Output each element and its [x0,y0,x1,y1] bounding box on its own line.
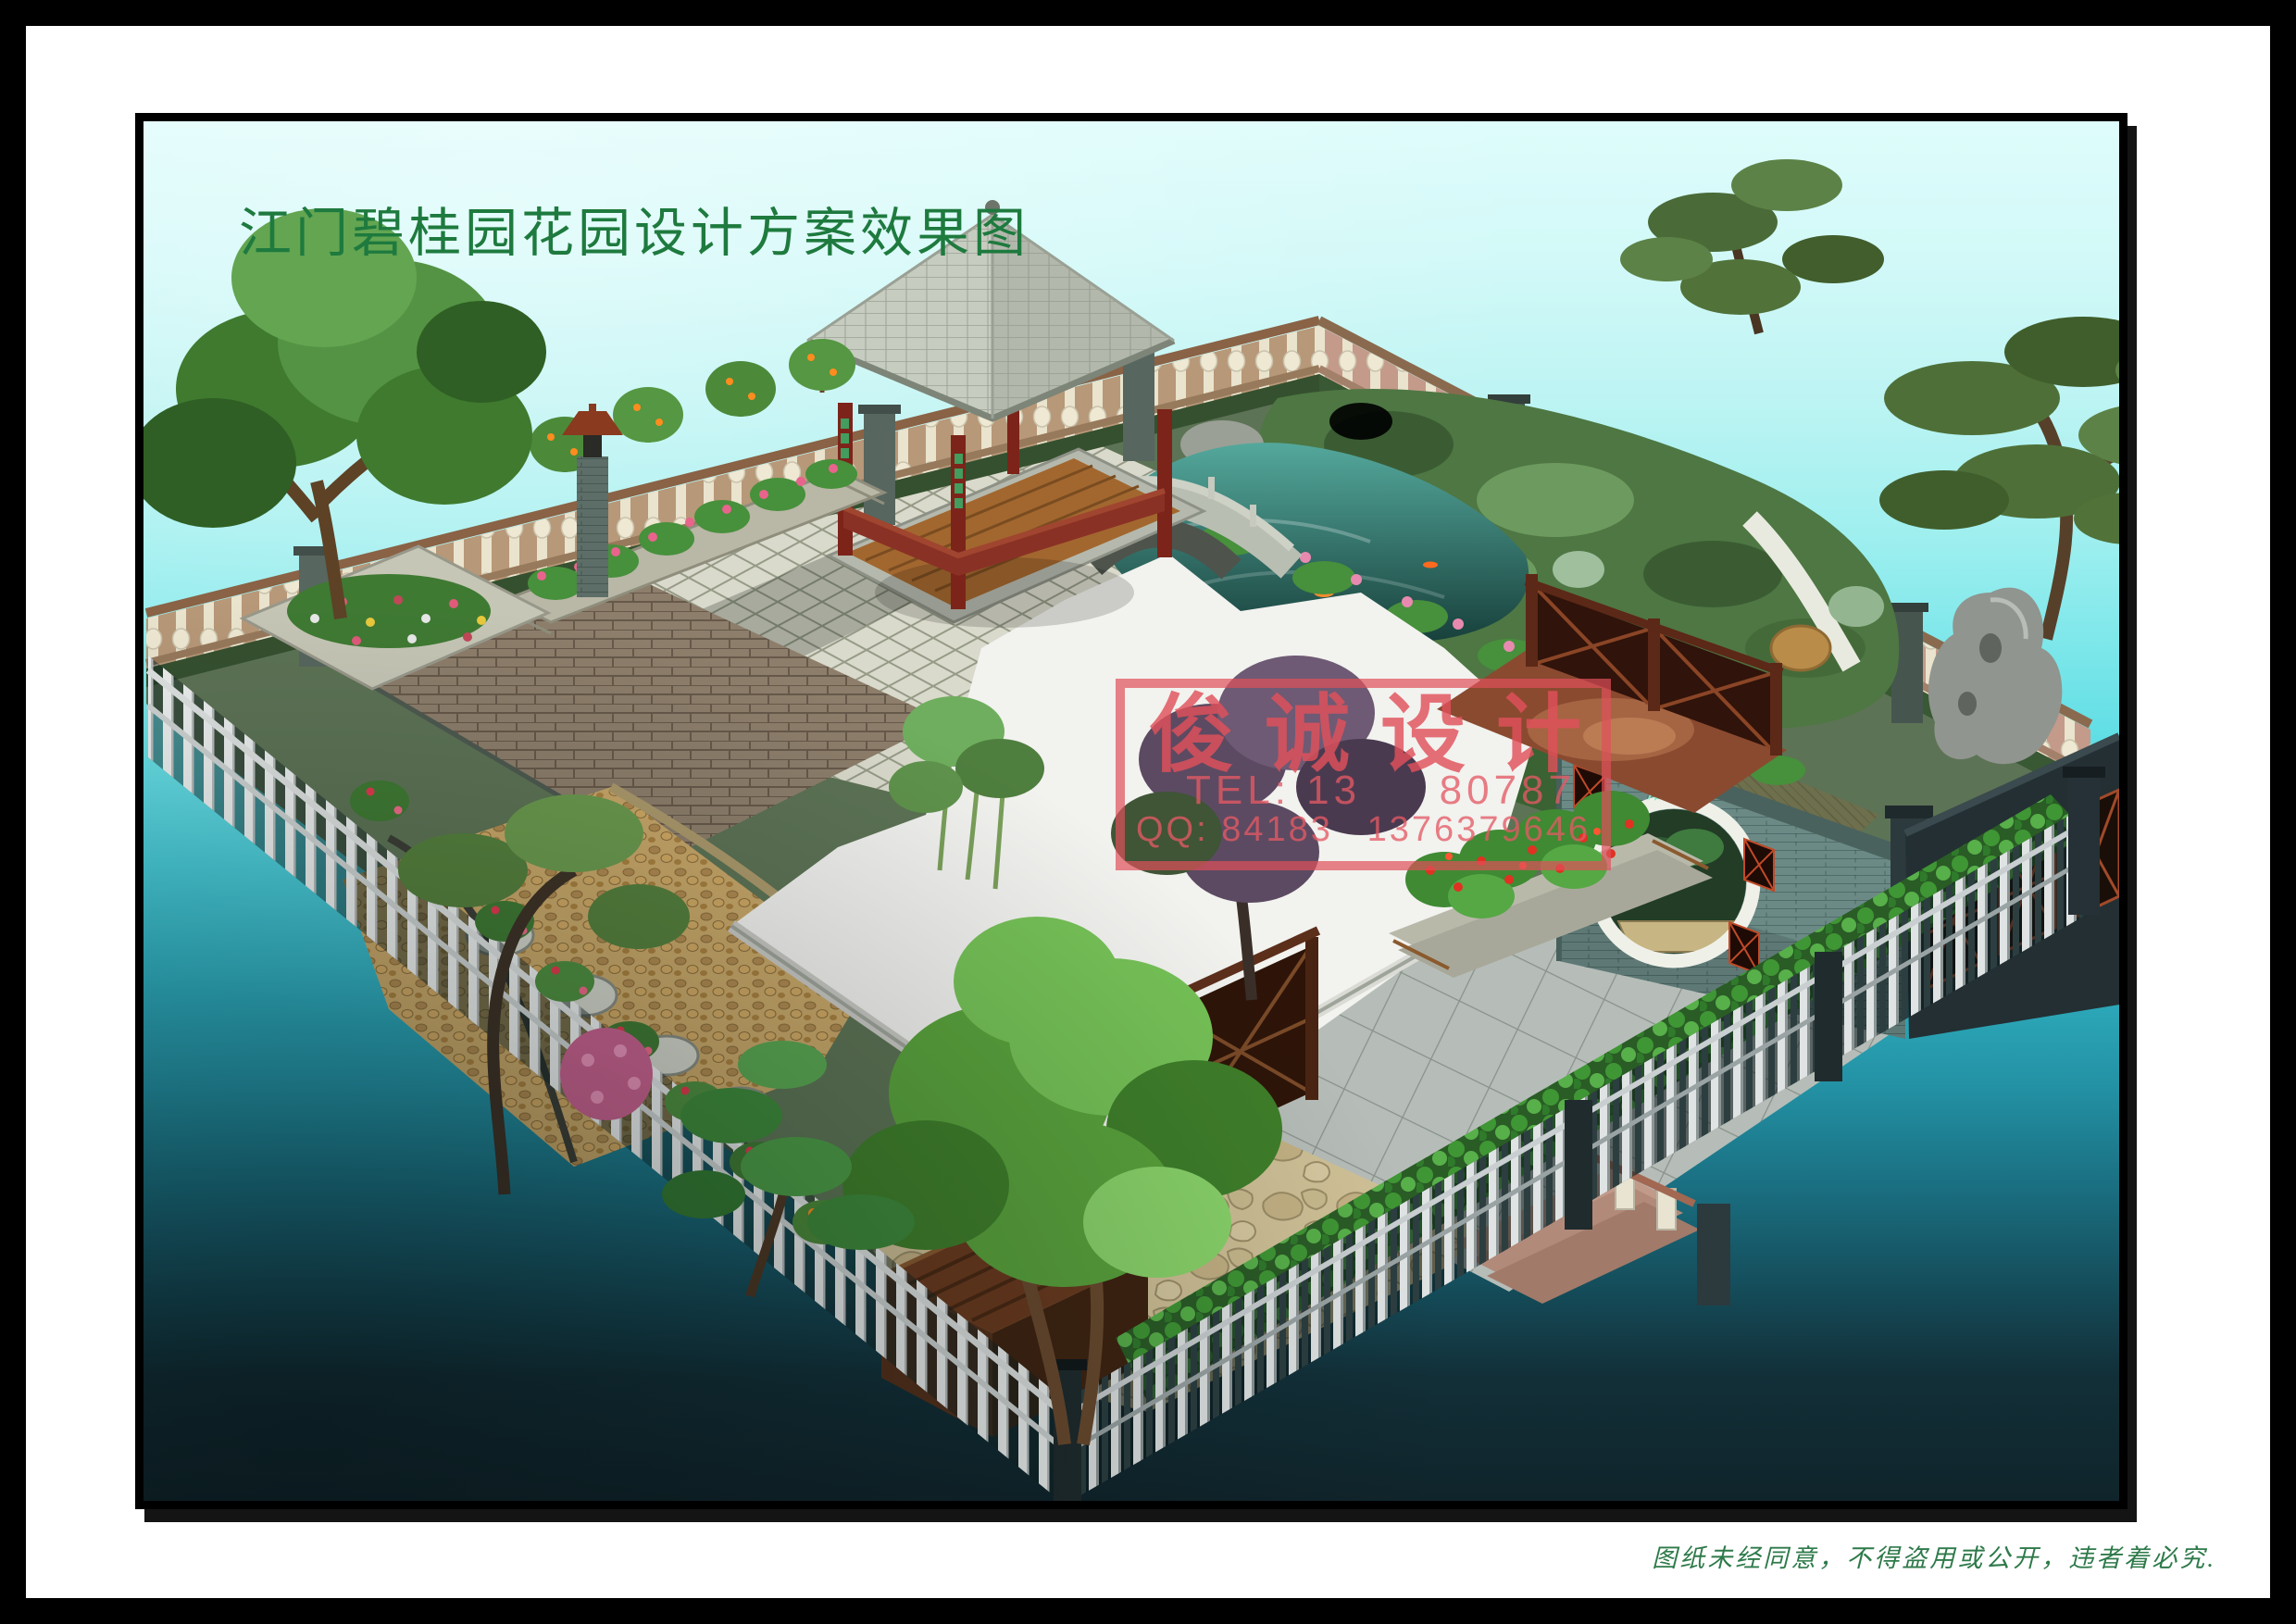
watermark-char: 设 [1380,690,1466,779]
watermark-char: 诚 [1265,690,1350,779]
watermark-tel: TEL: 13 80787 [1125,771,1602,810]
watermark-char: 俊 [1149,690,1234,779]
pine-tree-top [1620,159,1884,333]
tel-prefix: TEL: 13 [1186,771,1361,810]
qq-prefix: QQ: 84183 [1136,812,1333,847]
designer-watermark: 俊 诚 设 计 TEL: 13 80787 QQ: 84183 13763796… [1116,679,1611,870]
watermark-char: 计 [1496,690,1581,779]
copyright-note: 图纸未经同意，不得盗用或公开，违者着必究. [1652,1538,2216,1574]
taihu-rock [1928,588,2062,765]
watermark-qq: QQ: 84183 1376379646 [1125,812,1602,847]
page-title: 江门碧桂园花园设计方案效果图 [239,191,1029,267]
pink-azalea [560,1028,653,1120]
qq-suffix: 1376379646 [1367,812,1591,847]
watermark-brand: 俊 诚 设 计 [1125,688,1602,779]
page-margin: 浴游 [26,26,2270,1598]
tel-suffix: 80787 [1440,771,1576,810]
